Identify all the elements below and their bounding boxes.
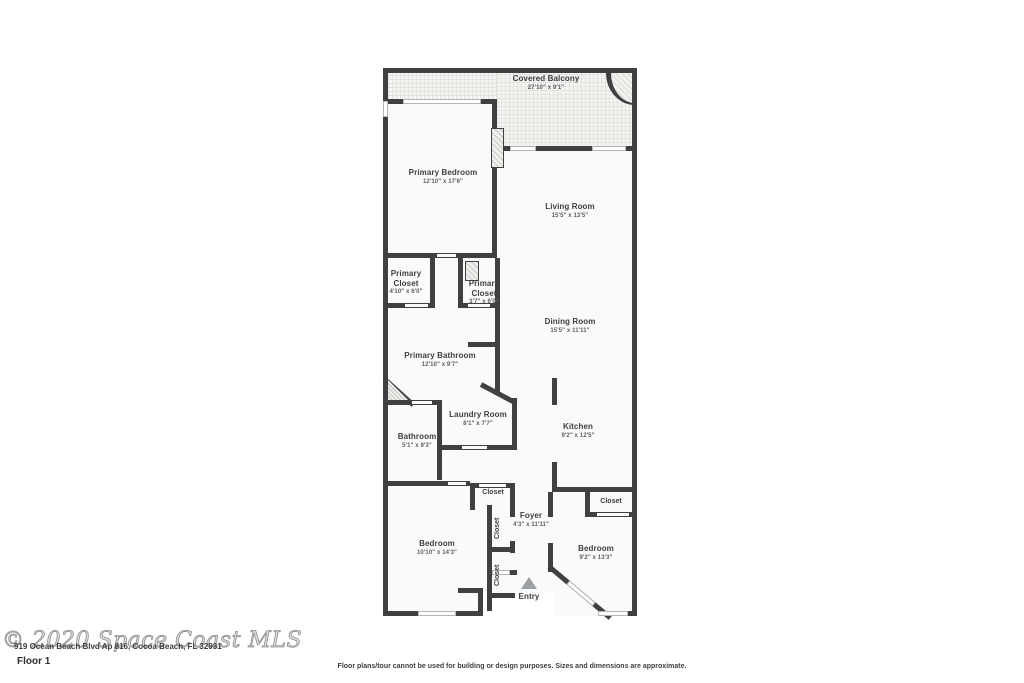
closet-label-vertical-2: Closet — [494, 556, 510, 594]
door-opening — [479, 484, 506, 487]
hatch-column — [491, 128, 504, 168]
room-name: Bedroom — [377, 539, 497, 549]
room-name: Kitchen — [518, 422, 638, 432]
door-opening — [412, 401, 432, 404]
closet-label-top: Closet — [468, 489, 518, 496]
hatch-fixture — [465, 261, 479, 281]
window — [383, 101, 388, 117]
wall-segment — [470, 483, 475, 510]
window — [598, 611, 628, 616]
room-dims: 27'10" x 9'1" — [486, 85, 606, 91]
room-name: Covered Balcony — [486, 74, 606, 84]
entry-label: Entry — [504, 592, 554, 602]
room-dims: 15'5" x 13'5" — [510, 213, 630, 219]
window — [510, 146, 536, 151]
room-dims: 5'1" x 9'3" — [367, 443, 467, 449]
disclaimer-text: Floor plans/tour cannot be used for buil… — [292, 663, 732, 670]
room-name: Primary Closet — [460, 279, 508, 298]
room-label-bathroom: Bathroom 5'1" x 9'3" — [367, 432, 467, 449]
wall-segment — [478, 588, 483, 616]
property-address: 919 Ocean Beach Blvd Ap 816, Cocoa Beach… — [14, 642, 222, 651]
floor-plan-page: Covered Balcony 27'10" x 9'1" Primary Be… — [0, 0, 1024, 683]
room-dims: 9'2" x 13'3" — [536, 555, 656, 561]
room-label-dining-room: Dining Room 15'5" x 11'11" — [510, 317, 630, 334]
room-label-primary-bedroom: Primary Bedroom 12'10" x 17'6" — [383, 168, 503, 185]
room-name: Primary Bedroom — [383, 168, 503, 178]
room-name: Living Room — [510, 202, 630, 212]
room-dims: 10'10" x 14'3" — [377, 550, 497, 556]
window — [592, 146, 626, 151]
room-name: Primary Bathroom — [380, 351, 500, 361]
window-slider — [403, 99, 481, 104]
wall-segment — [552, 487, 637, 492]
wall-segment — [383, 68, 388, 616]
room-name: Laundry Room — [418, 410, 538, 420]
room-label-primary-closet-1: Primary Closet 4'10" x 6'0" — [378, 269, 434, 295]
room-dims: 3'7" x 6'0" — [460, 299, 508, 305]
room-name: Primary Closet — [378, 269, 434, 288]
closet-label-right: Closet — [586, 498, 636, 505]
room-label-primary-closet-2: Primary Closet 3'7" x 6'0" — [460, 279, 508, 305]
balcony-deck-hatch — [388, 73, 497, 100]
door-opening — [597, 513, 629, 516]
room-name: Bathroom — [367, 432, 467, 442]
room-label-covered-balcony: Covered Balcony 27'10" x 9'1" — [486, 74, 606, 91]
door-opening — [448, 482, 466, 485]
room-label-bedroom-left: Bedroom 10'10" x 14'3" — [377, 539, 497, 556]
door-opening — [437, 254, 456, 257]
room-dims: 12'10" x 17'6" — [383, 179, 503, 185]
room-name: Bedroom — [536, 544, 656, 554]
wall-segment — [383, 68, 637, 73]
window — [418, 611, 456, 616]
room-name: Dining Room — [510, 317, 630, 327]
entry-arrow-icon — [521, 577, 537, 589]
room-dims: 12'10" x 9'7" — [380, 362, 500, 368]
room-dims: 9'2" x 12'5" — [518, 433, 638, 439]
wall-segment — [552, 378, 557, 405]
room-dims: 4'10" x 6'0" — [378, 289, 434, 295]
wall-segment — [468, 342, 500, 347]
door-opening — [510, 553, 515, 571]
floor-label: Floor 1 — [17, 656, 50, 667]
room-label-kitchen: Kitchen 9'2" x 12'5" — [518, 422, 638, 439]
closet-label-vertical-1: Closet — [494, 509, 510, 547]
room-label-bedroom-right: Bedroom 9'2" x 13'3" — [536, 544, 656, 561]
door-opening — [405, 304, 428, 307]
room-label-primary-bathroom: Primary Bathroom 12'10" x 9'7" — [380, 351, 500, 368]
room-dims: 15'5" x 11'11" — [510, 328, 630, 334]
room-label-living-room: Living Room 15'5" x 13'5" — [510, 202, 630, 219]
